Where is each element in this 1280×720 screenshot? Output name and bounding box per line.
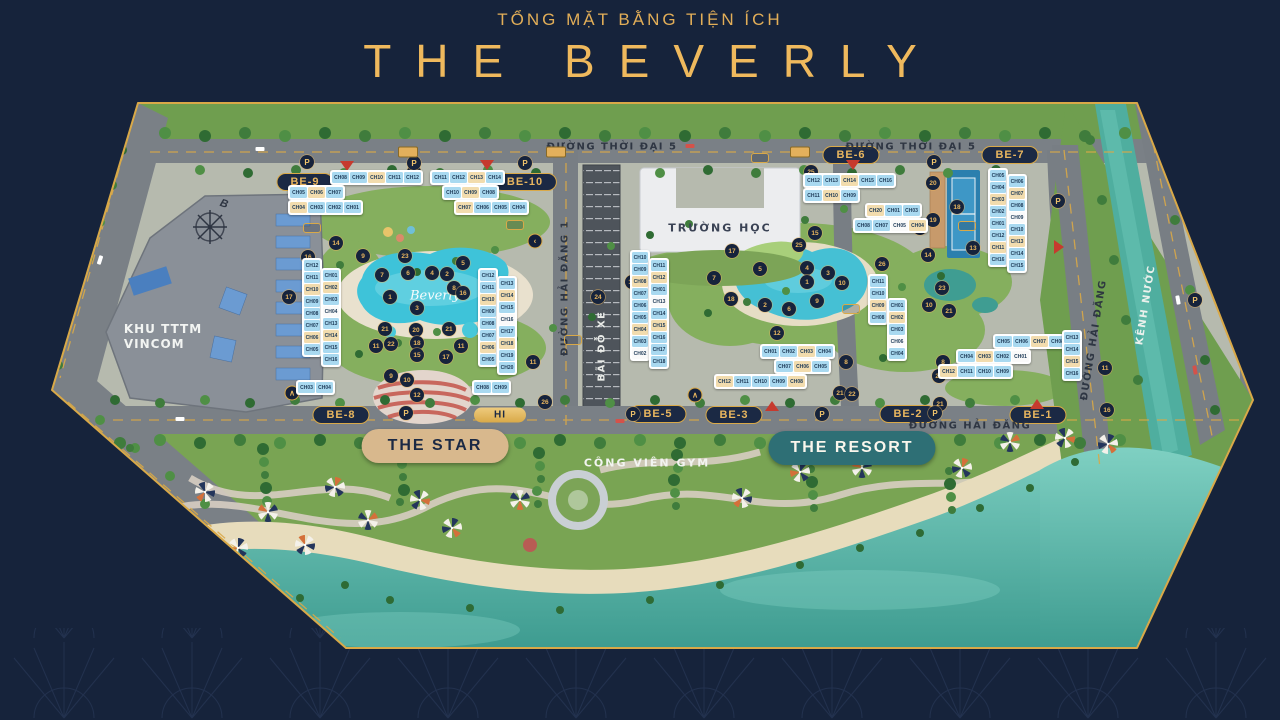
unit-cell: CH12 [480, 270, 496, 281]
zone-pill-be-3: BE-3 [705, 406, 762, 424]
unit-cell: CH02 [326, 202, 343, 213]
amenity-marker-11: 11 [369, 339, 383, 353]
unit-cell: CH01 [762, 346, 779, 357]
amenity-marker-6: 6 [401, 266, 415, 280]
unit-cell: CH02 [323, 282, 339, 293]
building-cluster-be10-row: CH08CH09 [472, 380, 511, 395]
map-overlay: KHU TTTMVINCOM TRƯỜNG HỌC CÔNG VIÊN GYM … [0, 0, 1280, 720]
unit-cell: CH14 [651, 308, 667, 319]
amenity-marker-8: 8 [839, 355, 853, 369]
building-cluster-be8-west: CH01CH02CH03CH04CH13CH14CH15CH16 [321, 268, 341, 367]
unit-cell: CH07 [1031, 336, 1048, 347]
unit-cell: CH07 [456, 202, 473, 213]
building-cluster-be10-south: CH13CH14CH15CH16CH17CH18CH19CH20 [497, 276, 517, 375]
building-cluster-be3: CH07CH06CH05 [774, 359, 831, 374]
unit-cell: CH20 [499, 362, 515, 373]
amenity-marker-22: 22 [384, 337, 398, 351]
building-cluster-be6: CH20CH01CH03 [865, 203, 922, 218]
unit-cell: CH02 [990, 206, 1006, 217]
amenity-marker-17: 17 [725, 244, 739, 258]
unit-cell: CH05 [304, 344, 320, 355]
unit-cell: CH06 [308, 187, 325, 198]
gym-park-label: CÔNG VIÊN GYM [584, 457, 710, 470]
building-cluster-be5: CH11CH12CH01CH13CH14CH15CH16CH17CH18 [649, 258, 669, 369]
unit-cell: CH14 [323, 330, 339, 341]
unit-cell: CH08 [632, 276, 648, 287]
direction-arrow-marker: ∧ [688, 388, 703, 403]
unit-cell: CH11 [304, 272, 320, 283]
unit-cell: CH04 [990, 182, 1006, 193]
unit-cell: CH11 [734, 376, 751, 387]
unit-cell: CH08 [304, 308, 320, 319]
unit-cell: CH10 [304, 284, 320, 295]
unit-cell: CH09 [350, 172, 367, 183]
signboard-marker [303, 223, 321, 233]
amenity-marker-19: 19 [926, 213, 940, 227]
amenity-marker-2: 2 [440, 267, 454, 281]
building-cluster-be6: CH08CH07CH05CH04 [853, 218, 928, 233]
unit-cell: CH12 [404, 172, 421, 183]
building-cluster-be8-row: CH03CH04 [296, 380, 335, 395]
unit-cell: CH09 [492, 382, 509, 393]
building-cluster-be8-west: CH12CH11CH10CH09CH08CH07CH06CH05 [302, 258, 322, 357]
gate-marker [846, 160, 860, 170]
unit-cell: CH09 [770, 376, 787, 387]
unit-cell: CH05 [812, 361, 829, 372]
unit-cell: CH03 [990, 194, 1006, 205]
building-cluster-be10: CH07CH06CH05CH04 [454, 200, 529, 215]
amenity-marker-21: 21 [442, 322, 456, 336]
amenity-marker-10: 10 [835, 276, 849, 290]
unit-cell: CH14 [486, 172, 503, 183]
amenity-marker-7: 7 [707, 271, 721, 285]
unit-cell: CH13 [1009, 236, 1025, 247]
unit-cell: CH04 [510, 202, 527, 213]
building-cluster-be10: CH10CH09CH08 [442, 185, 499, 200]
unit-cell: CH12 [304, 260, 320, 271]
vincom-label: KHU TTTMVINCOM [124, 322, 202, 352]
unit-cell: CH02 [780, 346, 797, 357]
unit-cell: CH12 [651, 272, 667, 283]
unit-cell: CH04 [958, 351, 975, 362]
unit-cell: CH09 [462, 187, 479, 198]
direction-arrow-marker: ‹ [528, 234, 543, 249]
unit-cell: CH10 [1009, 224, 1025, 235]
bus-stop-marker [790, 147, 810, 158]
unit-cell: CH10 [444, 187, 461, 198]
amenity-marker-20: 20 [926, 176, 940, 190]
street-label: KÊNH NƯỚC [1134, 264, 1158, 346]
parking-marker: P [927, 155, 941, 169]
amenity-marker-20: 20 [409, 323, 423, 337]
amenity-marker-7: 7 [375, 268, 389, 282]
poster: { "header": { "subtitle": "TỔNG MẶT BẰNG… [0, 0, 1280, 720]
amenity-marker-14: 14 [329, 236, 343, 250]
unit-cell: CH10 [368, 172, 385, 183]
signboard-marker [751, 153, 769, 163]
unit-cell: CH17 [651, 344, 667, 355]
unit-cell: CH04 [889, 348, 905, 359]
unit-cell: CH05 [990, 170, 1006, 181]
unit-cell: CH18 [499, 338, 515, 349]
building-cluster-be1: CH04CH03CH02CH01 [956, 349, 1031, 364]
unit-cell: CH06 [632, 300, 648, 311]
amenity-marker-11: 11 [1098, 361, 1112, 375]
unit-cell: CH15 [499, 302, 515, 313]
parking-marker: P [1051, 194, 1065, 208]
amenity-marker-9: 9 [810, 294, 824, 308]
unit-cell: CH14 [1009, 248, 1025, 259]
amenity-marker-1: 1 [383, 290, 397, 304]
unit-cell: CH10 [976, 366, 993, 377]
amenity-marker-3: 3 [821, 266, 835, 280]
unit-cell: CH19 [499, 350, 515, 361]
unit-cell: CH01 [344, 202, 361, 213]
unit-cell: CH12 [805, 175, 822, 186]
unit-cell: CH08 [480, 318, 496, 329]
building-cluster-be10: CH11CH12CH13CH14 [430, 170, 505, 185]
unit-cell: CH03 [298, 382, 315, 393]
unit-cell: CH05 [632, 312, 648, 323]
street-label: ĐƯỜNG THỜI ĐẠI 5 [547, 142, 678, 153]
unit-cell: CH09 [632, 264, 648, 275]
unit-cell: CH15 [1009, 260, 1025, 271]
unit-cell: CH13 [823, 175, 840, 186]
amenity-marker-2: 2 [758, 298, 772, 312]
unit-cell: CH04 [323, 306, 339, 317]
amenity-marker-1: 1 [800, 275, 814, 289]
unit-cell: CH07 [632, 288, 648, 299]
unit-cell: CH08 [788, 376, 805, 387]
unit-cell: CH14 [841, 175, 858, 186]
unit-cell: CH06 [889, 336, 905, 347]
unit-cell: CH10 [752, 376, 769, 387]
unit-cell: CH13 [323, 318, 339, 329]
unit-cell: CH11 [480, 282, 496, 293]
unit-cell: CH04 [290, 202, 307, 213]
building-cluster-be2: CH11CH10CH09CH08 [868, 274, 888, 325]
building-cluster-be9: CH04CH03CH02CH01 [288, 200, 363, 215]
building-cluster-be3: CH01CH02CH03CH04 [760, 344, 835, 359]
unit-cell: CH06 [1013, 336, 1030, 347]
amenity-marker-17: 17 [439, 350, 453, 364]
unit-cell: CH13 [499, 278, 515, 289]
amenity-marker-23: 23 [935, 281, 949, 295]
unit-cell: CH04 [316, 382, 333, 393]
amenity-marker-23: 23 [398, 249, 412, 263]
signboard-marker [958, 221, 976, 231]
signboard-marker [842, 304, 860, 314]
feature-pill-hi: HI [474, 408, 526, 423]
unit-cell: CH01 [885, 205, 902, 216]
unit-cell: CH08 [480, 187, 497, 198]
amenity-marker-21: 21 [378, 322, 392, 336]
amenity-marker-14: 14 [921, 248, 935, 262]
building-cluster-be1: CH12CH11CH10CH09 [938, 364, 1013, 379]
unit-cell: CH11 [805, 190, 822, 201]
amenity-marker-12: 12 [410, 388, 424, 402]
unit-cell: CH09 [841, 190, 858, 201]
unit-cell: CH03 [889, 324, 905, 335]
unit-cell: CH02 [994, 351, 1011, 362]
unit-cell: CH08 [870, 312, 886, 323]
unit-cell: CH16 [651, 332, 667, 343]
amenity-marker-10: 10 [400, 373, 414, 387]
school-label: TRƯỜNG HỌC [668, 222, 771, 235]
unit-cell: CH03 [903, 205, 920, 216]
amenity-marker-18: 18 [950, 200, 964, 214]
unit-cell: CH09 [480, 306, 496, 317]
unit-cell: CH16 [990, 254, 1006, 265]
signboard-marker [506, 220, 524, 230]
unit-cell: CH03 [632, 336, 648, 347]
gate-marker [1054, 240, 1064, 254]
bus-stop-marker [546, 147, 566, 158]
unit-cell: CH04 [816, 346, 833, 357]
amenity-marker-25: 25 [792, 238, 806, 252]
unit-cell: CH09 [870, 300, 886, 311]
unit-cell: CH08 [855, 220, 872, 231]
unit-cell: CH15 [1064, 356, 1080, 367]
amenity-marker-16: 16 [1100, 403, 1114, 417]
amenity-marker-17: 17 [282, 290, 296, 304]
amenity-marker-11: 11 [454, 339, 468, 353]
unit-cell: CH06 [794, 361, 811, 372]
unit-cell: CH16 [877, 175, 894, 186]
building-cluster-be2: CH01CH02CH03CH06CH04 [887, 298, 907, 361]
unit-cell: CH11 [386, 172, 403, 183]
parking-marker: P [815, 407, 829, 421]
building-cluster-be9: CH08CH09CH10CH11CH12 [330, 170, 423, 185]
unit-cell: CH13 [651, 296, 667, 307]
bus-stop-marker [398, 147, 418, 158]
unit-cell: CH10 [632, 252, 648, 263]
unit-cell: CH14 [499, 290, 515, 301]
amenity-marker-3: 3 [410, 301, 424, 315]
unit-cell: CH03 [323, 294, 339, 305]
unit-cell: CH03 [976, 351, 993, 362]
unit-cell: CH08 [332, 172, 349, 183]
unit-cell: CH07 [1009, 188, 1025, 199]
parking-marker: P [518, 156, 532, 170]
amenity-marker-6: 6 [782, 302, 796, 316]
gate-marker [1030, 399, 1044, 409]
unit-cell: CH05 [290, 187, 307, 198]
street-label: BÃI ĐỖ XE [597, 311, 608, 382]
header-subtitle: TỔNG MẶT BẰNG TIỆN ÍCH [0, 10, 1280, 30]
unit-cell: CH17 [499, 326, 515, 337]
feature-pill-the-star: THE STAR [362, 429, 509, 463]
unit-cell: CH06 [474, 202, 491, 213]
unit-cell: CH16 [323, 354, 339, 365]
amenity-marker-16: 16 [456, 286, 470, 300]
unit-cell: CH09 [304, 296, 320, 307]
page-title: THE BEVERLY [0, 34, 1280, 88]
building-cluster-be9: CH05CH06CH07 [288, 185, 345, 200]
unit-cell: CH05 [492, 202, 509, 213]
unit-cell: CH02 [889, 312, 905, 323]
unit-cell: CH09 [994, 366, 1011, 377]
compass-north-label: B [218, 197, 229, 211]
building-cluster-be5: CH10CH09CH08CH07CH06CH05CH04CH03CH02 [630, 250, 650, 361]
parking-marker: P [399, 406, 413, 420]
zone-pill-be-7: BE-7 [981, 146, 1038, 164]
unit-cell: CH07 [326, 187, 343, 198]
unit-cell: CH01 [889, 300, 905, 311]
amenity-marker-24: 24 [591, 290, 605, 304]
gate-marker [480, 160, 494, 170]
unit-cell: CH11 [958, 366, 975, 377]
amenity-marker-4: 4 [425, 266, 439, 280]
unit-cell: CH04 [909, 220, 926, 231]
unit-cell: CH05 [891, 220, 908, 231]
unit-cell: CH06 [1009, 176, 1025, 187]
street-label: ĐƯỜNG HẢI ĐĂNG [909, 421, 1032, 432]
unit-cell: CH01 [651, 284, 667, 295]
unit-cell: CH07 [776, 361, 793, 372]
street-label: ĐƯỜNG HẢI ĐĂNG [1079, 279, 1109, 402]
parking-marker: P [300, 155, 314, 169]
unit-cell: CH10 [823, 190, 840, 201]
unit-cell: CH04 [632, 324, 648, 335]
unit-cell: CH13 [1064, 332, 1080, 343]
building-cluster-be3: CH12CH11CH10CH09CH08 [714, 374, 807, 389]
unit-cell: CH11 [651, 260, 667, 271]
amenity-marker-18: 18 [724, 292, 738, 306]
amenity-marker-13: 13 [966, 241, 980, 255]
amenity-marker-15: 15 [808, 226, 822, 240]
feature-pill-the-resort: THE RESORT [768, 431, 935, 465]
amenity-marker-5: 5 [456, 256, 470, 270]
unit-cell: CH12 [716, 376, 733, 387]
amenity-marker-11: 11 [526, 355, 540, 369]
amenity-marker-5: 5 [753, 262, 767, 276]
unit-cell: CH01 [323, 270, 339, 281]
unit-cell: CH11 [870, 276, 886, 287]
amenity-marker-21: 21 [942, 304, 956, 318]
parking-marker: P [1188, 293, 1202, 307]
unit-cell: CH01 [1012, 351, 1029, 362]
building-cluster-be6: CH12CH13CH14CH15CH16 [803, 173, 896, 188]
unit-cell: CH02 [632, 348, 648, 359]
unit-cell: CH13 [468, 172, 485, 183]
unit-cell: CH01 [990, 218, 1006, 229]
amenity-marker-9: 9 [356, 249, 370, 263]
unit-cell: CH06 [304, 332, 320, 343]
building-cluster-be10-south: CH12CH11CH10CH09CH08CH07CH06CH05 [478, 268, 498, 367]
amenity-marker-12: 12 [770, 326, 784, 340]
building-cluster-be6: CH11CH10CH09 [803, 188, 860, 203]
unit-cell: CH07 [304, 320, 320, 331]
parking-marker: P [626, 407, 640, 421]
unit-cell: CH03 [308, 202, 325, 213]
unit-cell: CH20 [867, 205, 884, 216]
amenity-marker-26: 26 [875, 257, 889, 271]
amenity-marker-9: 9 [384, 369, 398, 383]
amenity-marker-26: 26 [538, 395, 552, 409]
unit-cell: CH12 [990, 230, 1006, 241]
unit-cell: CH05 [995, 336, 1012, 347]
building-cluster-be7: CH06CH07CH08CH09CH10CH13CH14CH15 [1007, 174, 1027, 273]
unit-cell: CH03 [798, 346, 815, 357]
unit-cell: CH08 [474, 382, 491, 393]
amenity-marker-22: 22 [845, 387, 859, 401]
unit-cell: CH16 [1064, 368, 1080, 379]
amenity-marker-10: 10 [922, 298, 936, 312]
parking-marker: P [407, 156, 421, 170]
unit-cell: CH12 [940, 366, 957, 377]
signboard-marker [564, 335, 582, 345]
amenity-marker-4: 4 [800, 261, 814, 275]
unit-cell: CH12 [450, 172, 467, 183]
unit-cell: CH10 [870, 288, 886, 299]
amenity-marker-15: 15 [410, 348, 424, 362]
unit-cell: CH15 [323, 342, 339, 353]
gate-marker [765, 401, 779, 411]
unit-cell: CH16 [499, 314, 515, 325]
building-cluster-be1: CH05CH06CH07CH08 [993, 334, 1068, 349]
unit-cell: CH11 [432, 172, 449, 183]
header: TỔNG MẶT BẰNG TIỆN ÍCH THE BEVERLY [0, 10, 1280, 88]
unit-cell: CH09 [1009, 212, 1025, 223]
building-cluster-be1-east: CH13CH14CH15CH16 [1062, 330, 1082, 381]
unit-cell: CH18 [651, 356, 667, 367]
unit-cell: CH08 [1009, 200, 1025, 211]
building-cluster-be7: CH05CH04CH03CH02CH01CH12CH11CH16 [988, 168, 1008, 267]
unit-cell: CH15 [651, 320, 667, 331]
unit-cell: CH07 [873, 220, 890, 231]
unit-cell: CH15 [859, 175, 876, 186]
unit-cell: CH11 [990, 242, 1006, 253]
unit-cell: CH10 [480, 294, 496, 305]
unit-cell: CH14 [1064, 344, 1080, 355]
unit-cell: CH05 [480, 354, 496, 365]
unit-cell: CH07 [480, 330, 496, 341]
street-label: ĐƯỜNG THỜI ĐẠI 5 [846, 142, 977, 153]
unit-cell: CH06 [480, 342, 496, 353]
zone-pill-be-8: BE-8 [312, 406, 369, 424]
parking-marker: P [928, 406, 942, 420]
